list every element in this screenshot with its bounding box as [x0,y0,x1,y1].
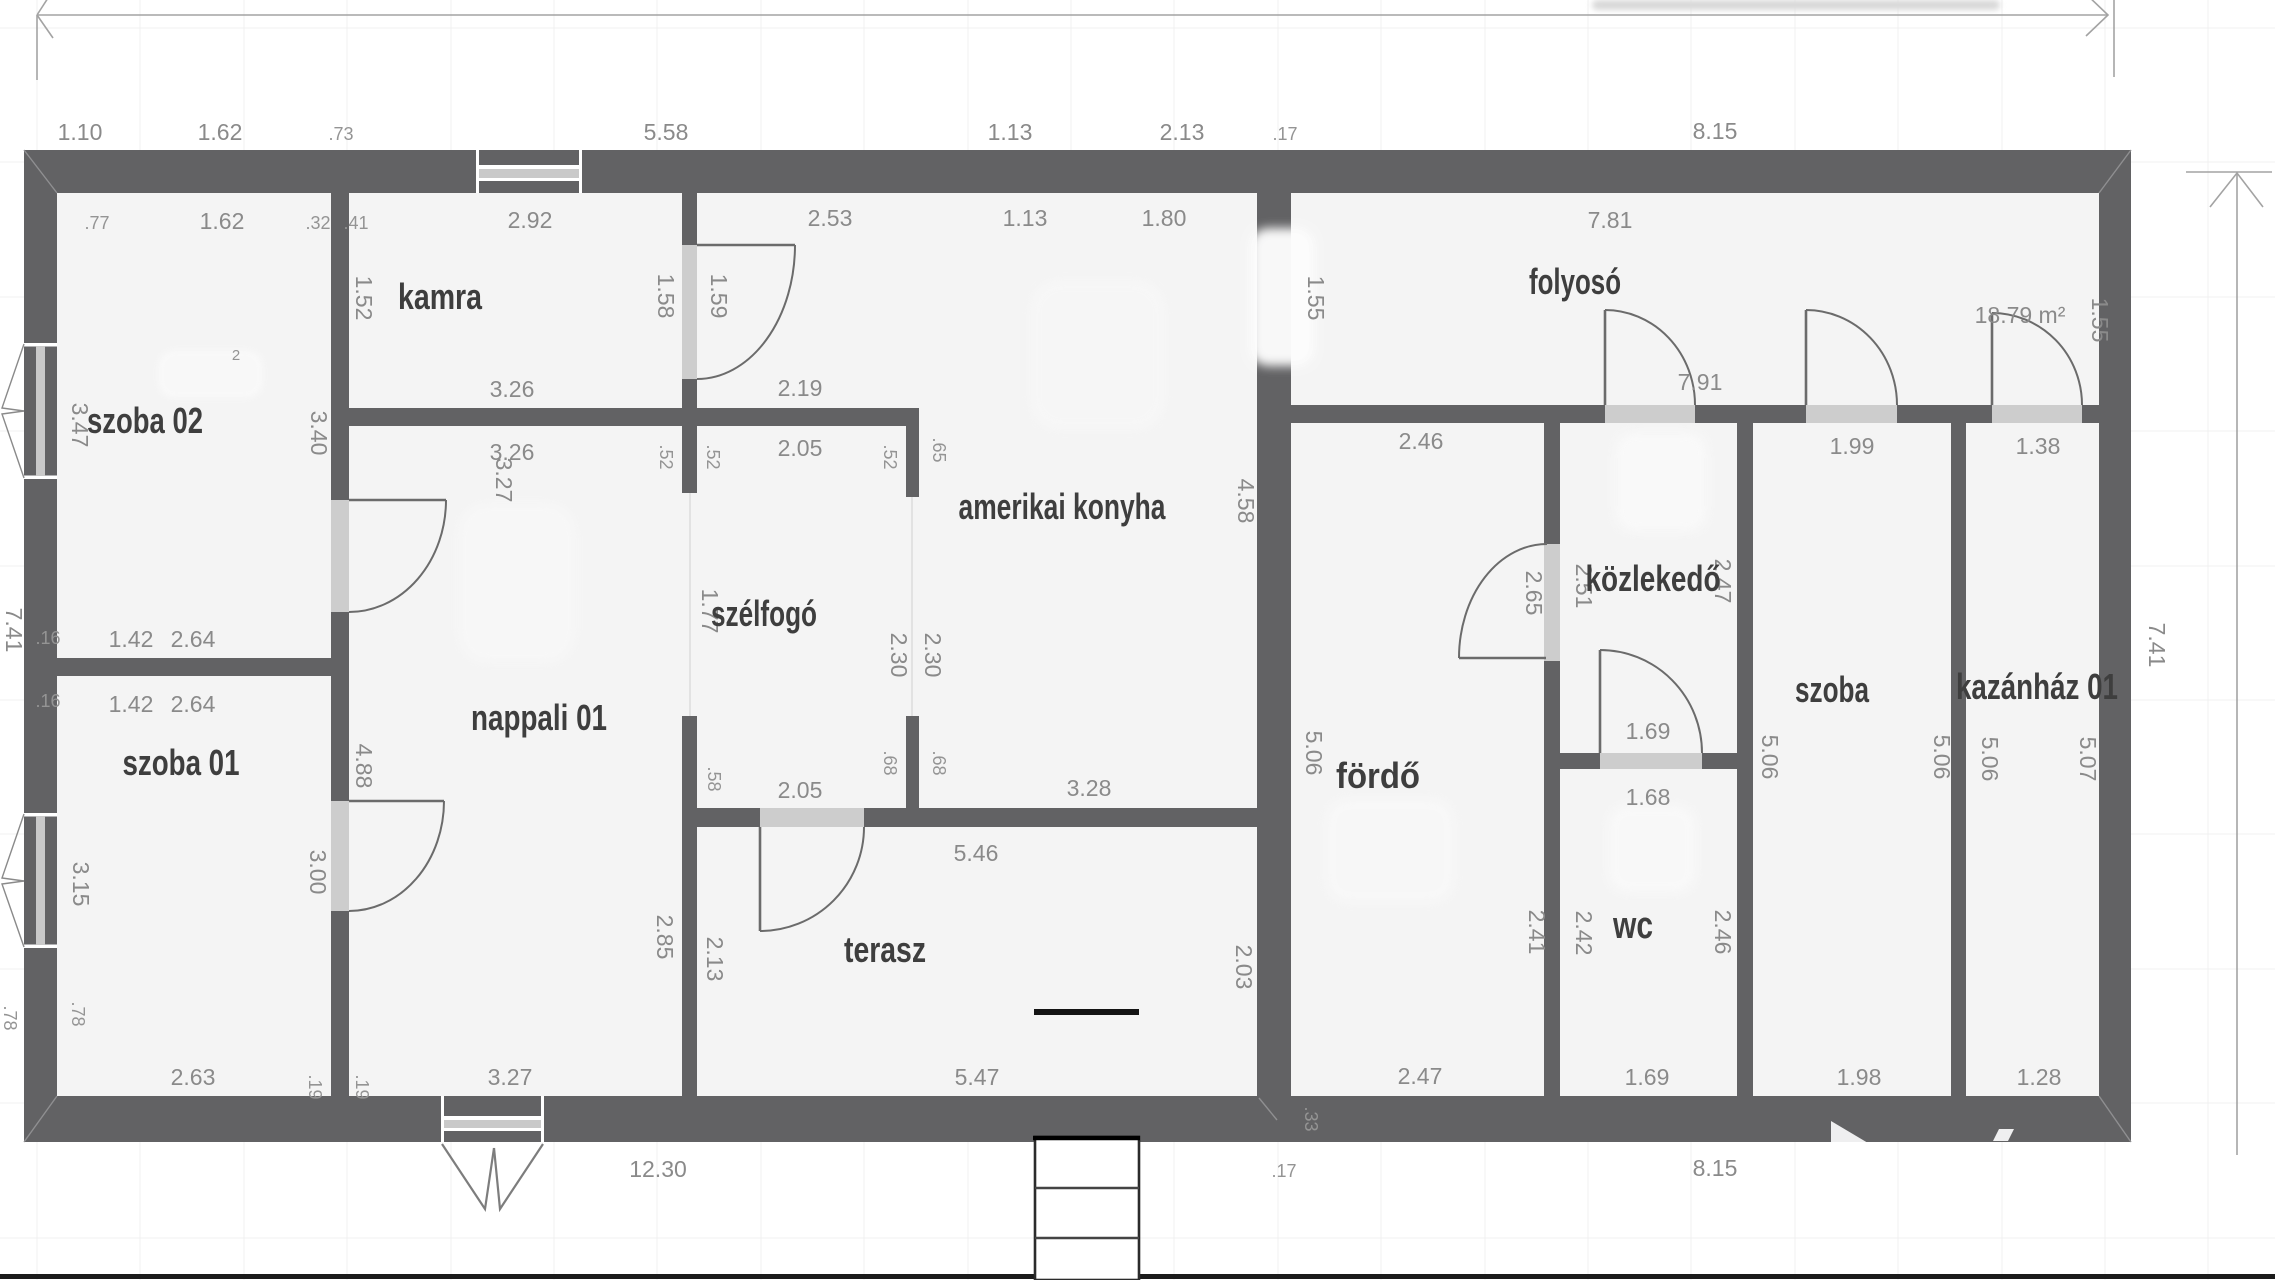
svg-text:2.46: 2.46 [1399,428,1444,454]
svg-text:1.10: 1.10 [58,119,103,145]
svg-text:3.26: 3.26 [490,376,535,402]
svg-text:1.38: 1.38 [2016,433,2061,459]
svg-text:1.62: 1.62 [198,119,243,145]
svg-text:.52: .52 [656,444,676,469]
svg-text:.65: .65 [929,437,949,462]
svg-text:1.55: 1.55 [2087,298,2113,343]
svg-text:7.81: 7.81 [1588,207,1633,233]
svg-text:5.46: 5.46 [954,840,999,866]
svg-text:8.15: 8.15 [1693,1155,1738,1181]
svg-text:2.64: 2.64 [171,626,216,652]
svg-text:1.42: 1.42 [109,626,154,652]
svg-text:2.05: 2.05 [778,777,823,803]
svg-text:.78: .78 [68,1001,88,1026]
svg-text:5.58: 5.58 [644,119,689,145]
svg-text:2.05: 2.05 [778,435,823,461]
svg-text:2.47: 2.47 [1398,1063,1443,1089]
svg-text:.78: .78 [0,1005,20,1030]
svg-text:5.47: 5.47 [955,1064,1000,1090]
svg-text:.19: .19 [352,1074,372,1099]
svg-text:2.41: 2.41 [1524,910,1550,955]
svg-text:2.53: 2.53 [808,205,853,231]
svg-text:12.30: 12.30 [629,1156,687,1182]
svg-text:2.30: 2.30 [920,633,946,678]
svg-text:7.91: 7.91 [1678,369,1723,395]
svg-text:1.59: 1.59 [706,274,732,319]
svg-text:.77: .77 [84,213,109,233]
svg-text:.41: .41 [343,213,368,233]
svg-text:1.98: 1.98 [1837,1064,1882,1090]
svg-text:1.55: 1.55 [1303,276,1329,321]
svg-text:1.42: 1.42 [109,691,154,717]
svg-text:18.79 m²: 18.79 m² [1975,302,2066,328]
svg-text:amerikai konyha: amerikai konyha [959,486,1167,527]
svg-text:folyosó: folyosó [1529,261,1621,302]
svg-text:1.13: 1.13 [988,119,1033,145]
svg-text:nappali 01: nappali 01 [471,697,607,738]
svg-text:.58: .58 [704,766,724,791]
svg-text:.17: .17 [1272,124,1297,144]
svg-text:1.52: 1.52 [351,276,377,321]
svg-text:.33: .33 [1301,1106,1321,1131]
svg-text:.16: .16 [35,628,60,648]
svg-text:2.92: 2.92 [508,207,553,233]
svg-text:2: 2 [232,347,240,364]
svg-text:.17: .17 [1271,1161,1296,1181]
svg-text:.68: .68 [929,750,949,775]
svg-text:.73: .73 [328,124,353,144]
svg-text:3.40: 3.40 [306,411,332,456]
svg-text:1.13: 1.13 [1003,205,1048,231]
svg-text:2.46: 2.46 [1710,910,1736,955]
svg-text:.52: .52 [703,444,723,469]
svg-text:5.06: 5.06 [1929,735,1955,780]
svg-text:.19: .19 [305,1074,325,1099]
svg-text:3.15: 3.15 [68,862,94,907]
svg-text:5.06: 5.06 [1977,737,2003,782]
svg-text:szoba 02: szoba 02 [87,400,203,441]
svg-text:4.58: 4.58 [1233,479,1259,524]
svg-text:szoba: szoba [1795,669,1870,710]
svg-text:kamra: kamra [398,276,483,317]
svg-text:szoba 01: szoba 01 [123,742,240,783]
svg-text:fördő: fördő [1336,755,1420,796]
svg-text:8.15: 8.15 [1693,118,1738,144]
svg-text:3.27: 3.27 [491,458,517,503]
svg-text:7.41: 7.41 [1,608,27,653]
svg-text:2.63: 2.63 [171,1064,216,1090]
svg-text:2.13: 2.13 [1160,119,1205,145]
svg-text:2.65: 2.65 [1521,571,1547,616]
svg-text:1.99: 1.99 [1830,433,1875,459]
svg-text:3.00: 3.00 [305,850,331,895]
svg-text:1.58: 1.58 [653,274,679,319]
svg-text:.16: .16 [35,691,60,711]
svg-text:2.85: 2.85 [652,915,678,960]
svg-text:1.69: 1.69 [1626,718,1671,744]
svg-text:közlekedő: közlekedő [1586,558,1721,599]
svg-text:5.06: 5.06 [1757,735,1783,780]
svg-text:5.06: 5.06 [1301,731,1327,776]
svg-text:wc: wc [1612,905,1653,947]
svg-text:2.19: 2.19 [778,375,823,401]
svg-text:terasz: terasz [844,929,926,970]
svg-text:.68: .68 [880,750,900,775]
svg-text:3.27: 3.27 [488,1064,533,1090]
svg-text:1.80: 1.80 [1142,205,1187,231]
svg-text:2.30: 2.30 [886,633,912,678]
svg-text:5.07: 5.07 [2075,737,2101,782]
svg-text:.32: .32 [305,213,330,233]
svg-text:1.28: 1.28 [2017,1064,2062,1090]
svg-text:kazánház 01: kazánház 01 [1956,666,2118,707]
svg-text:4.88: 4.88 [351,744,377,789]
svg-text:szélfogó: szélfogó [711,593,817,634]
svg-text:2.42: 2.42 [1571,911,1597,956]
svg-text:7.41: 7.41 [2144,623,2170,668]
svg-text:1.68: 1.68 [1626,784,1671,810]
svg-text:2.03: 2.03 [1231,945,1257,990]
svg-text:2.13: 2.13 [702,937,728,982]
svg-text:3.28: 3.28 [1067,775,1112,801]
svg-text:2.64: 2.64 [171,691,216,717]
svg-text:.52: .52 [880,444,900,469]
svg-text:1.62: 1.62 [200,208,245,234]
svg-text:1.69: 1.69 [1625,1064,1670,1090]
